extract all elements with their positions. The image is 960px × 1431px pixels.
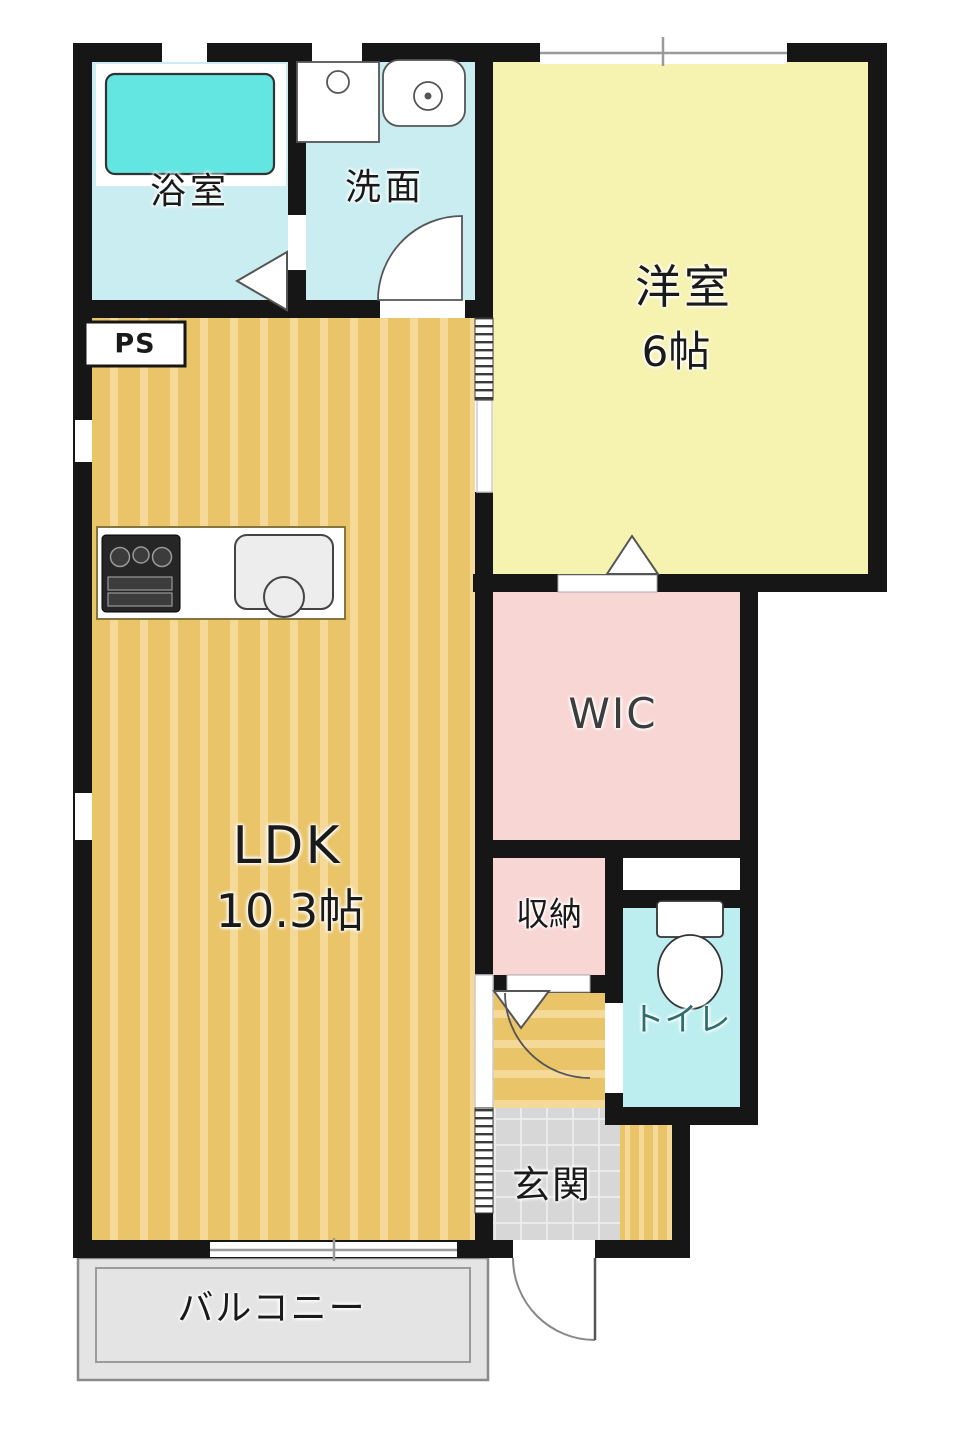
wall-western-bottom: [473, 574, 887, 592]
western-room-floor: [493, 62, 868, 574]
wall-left: [73, 43, 92, 1258]
stove-grill: [108, 577, 172, 590]
western-room-size: 6帖: [642, 331, 711, 373]
kitchen-sink-drain: [264, 577, 304, 617]
ldk-left-window-1: [75, 420, 92, 462]
storage-door-panel: [507, 975, 590, 992]
toilet-bowl: [658, 935, 722, 1009]
floor-plan-drawing: [0, 0, 960, 1431]
ldk-western-opening: [477, 400, 492, 492]
pipe-space-label: PS: [114, 331, 155, 358]
entrance-door-opening: [513, 1240, 595, 1258]
washroom-door-opening: [380, 300, 465, 318]
vanity-sink: [383, 60, 465, 126]
wall-bath-wash-divider-low: [288, 270, 306, 318]
stove-burner: [133, 547, 149, 563]
wic-label: WIC: [568, 693, 657, 735]
washroom-label: 洗面: [345, 170, 425, 206]
wall-wash-western-divider: [475, 43, 493, 318]
toilet-label: トイレ: [632, 1003, 731, 1036]
bath-room-label: 浴室: [150, 174, 230, 210]
balcony-label: バルコニー: [177, 1291, 366, 1327]
washing-machine-drain: [327, 71, 349, 93]
wall-entrance-right: [672, 1125, 690, 1258]
stove-burner: [153, 548, 172, 567]
ldk-western-hatch-strip: [475, 318, 493, 400]
entrance-label: 玄関: [512, 1166, 592, 1204]
ldk-label: LDK: [232, 820, 341, 872]
floor-plan: 浴室 洗面 PS 洋室 6帖 LDK 10.3帖 WIC 収納 トイレ 玄関 バ…: [0, 0, 960, 1431]
wic-door-panel: [558, 575, 657, 592]
ldk-left-window-2: [75, 793, 92, 840]
ldk-size: 10.3帖: [216, 888, 364, 934]
entrance-door-swing: [513, 1258, 595, 1340]
bathtub: [106, 74, 274, 174]
entrance-step: [620, 1125, 672, 1240]
wall-right-mid: [740, 592, 758, 1125]
washroom-vent-window: [312, 39, 362, 62]
wall-ldk-western-divider: [475, 492, 493, 975]
bath-door-opening: [288, 215, 306, 270]
stove-panel: [108, 593, 172, 606]
vanity-sink-drain: [425, 93, 432, 100]
toilet-shelf-area: [623, 858, 740, 890]
toilet-tank: [657, 901, 723, 937]
western-room-label: 洋室: [635, 264, 733, 310]
wall-genkan-left-stub: [475, 1213, 493, 1258]
bath-vent-window: [162, 39, 207, 62]
wall-wic-bottom: [475, 840, 758, 858]
toilet-door-opening: [605, 1003, 623, 1093]
entrance-step-hatch-strip: [475, 1108, 493, 1213]
wall-toilet-bottom: [605, 1107, 758, 1125]
storage-label: 収納: [516, 898, 582, 931]
wall-right-upper: [868, 43, 887, 592]
ldk-hallway-opening: [475, 975, 493, 1108]
stove-burner: [111, 548, 130, 567]
ldk-floor: [92, 318, 475, 1240]
